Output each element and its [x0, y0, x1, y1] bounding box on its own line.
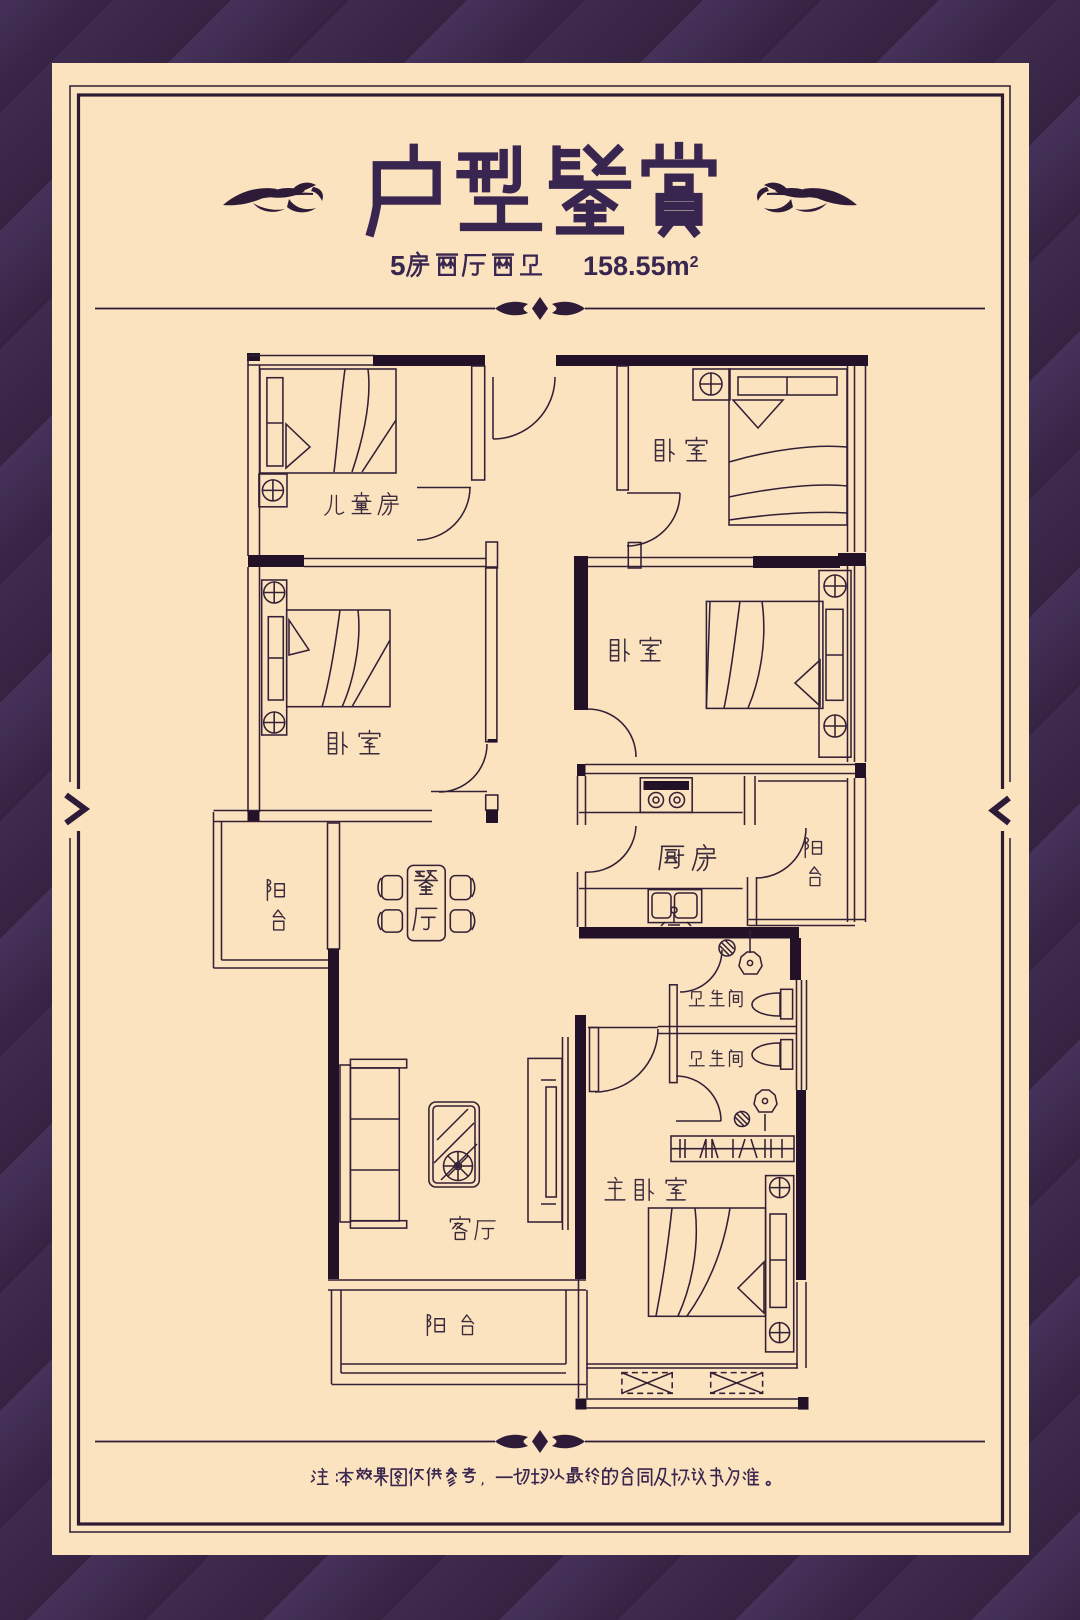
- svg-text:158.55m2: 158.55m2: [583, 251, 699, 281]
- svg-text:5: 5: [390, 250, 406, 281]
